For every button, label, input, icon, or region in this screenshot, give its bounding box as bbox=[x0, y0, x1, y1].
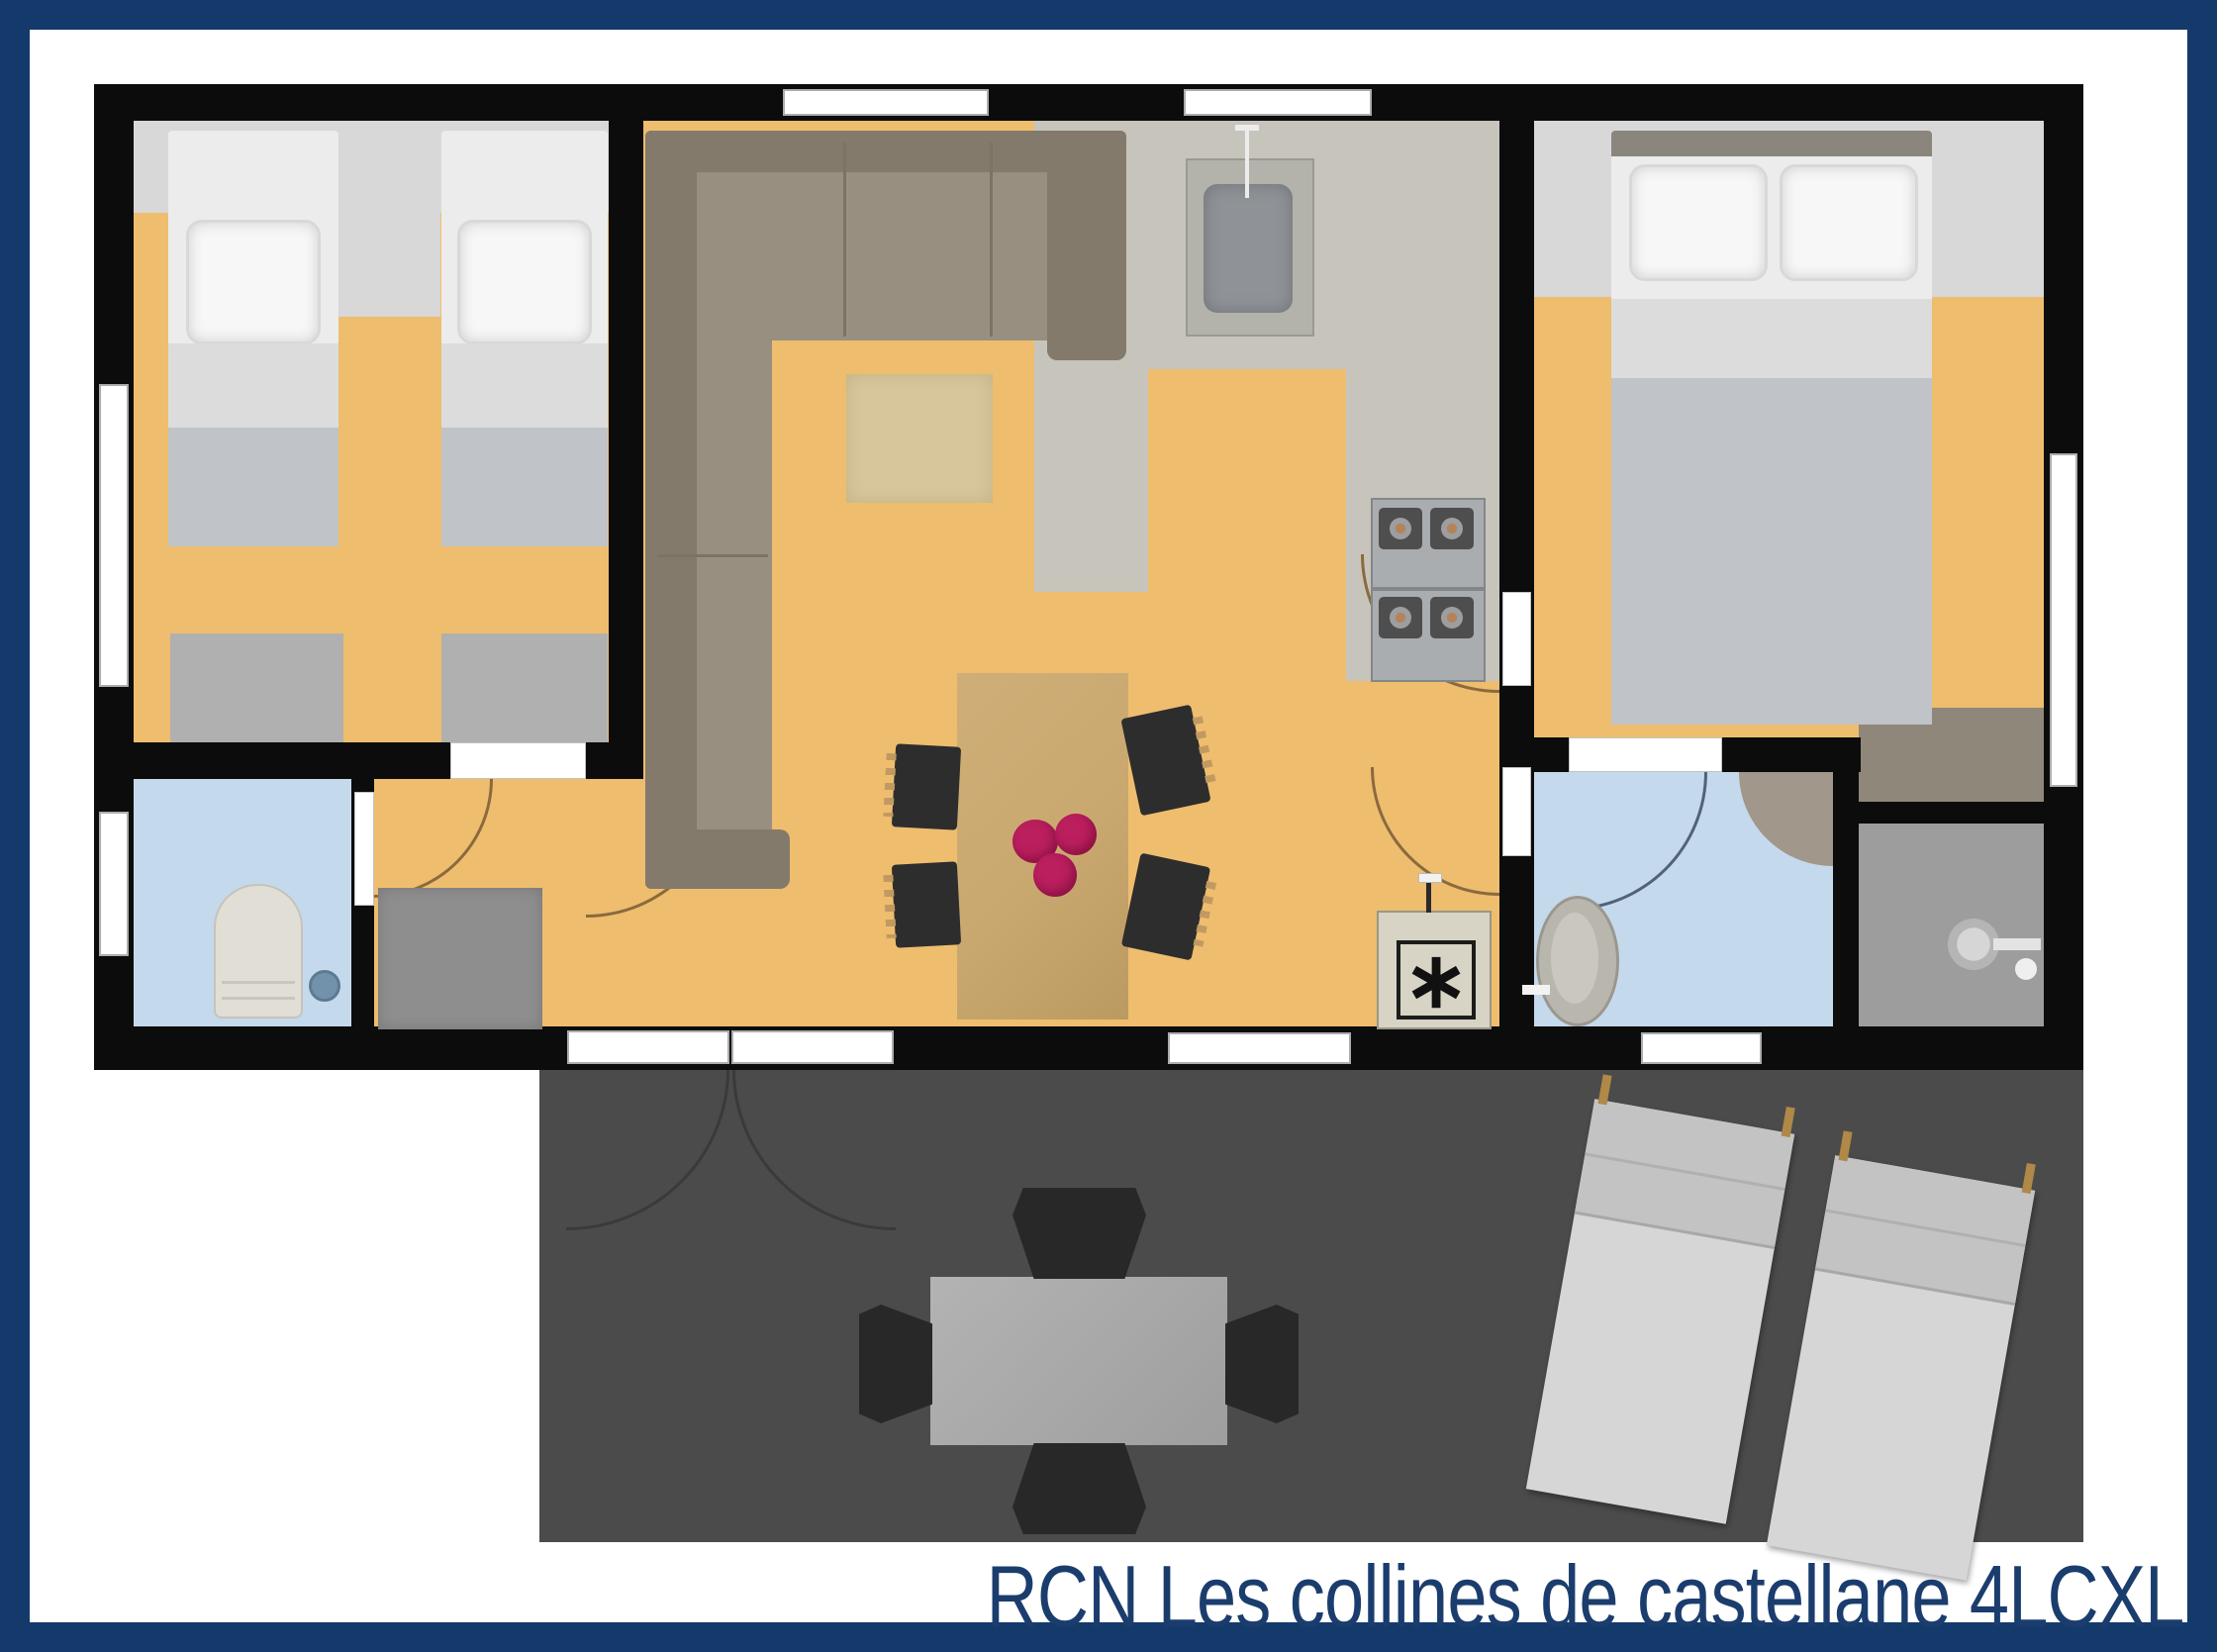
sofa-cushion-line-3 bbox=[657, 554, 768, 557]
blanket bbox=[168, 428, 338, 546]
french-door-left-leaf bbox=[567, 1030, 729, 1064]
double-bed bbox=[1611, 131, 1932, 725]
washbasin-icon bbox=[1536, 896, 1619, 1026]
blanket bbox=[441, 428, 608, 546]
door-opening-leftbedroom bbox=[450, 742, 586, 779]
water-heater-icon: ∗ bbox=[1377, 911, 1492, 1029]
left-bedroom-nightstand bbox=[335, 119, 440, 317]
pillow-icon bbox=[1629, 164, 1768, 281]
stove-icon bbox=[1371, 498, 1486, 682]
wall-leftbedroom-living bbox=[609, 119, 643, 779]
plan-title: RCN Les collines de castellane 4LCXL bbox=[986, 1546, 2183, 1647]
window-left-toilet bbox=[99, 812, 129, 956]
window-bottom-living bbox=[1168, 1032, 1351, 1064]
sheet-fold bbox=[441, 343, 608, 428]
shower-head-icon bbox=[1948, 919, 1999, 970]
patio-chair-bottom bbox=[1012, 1443, 1146, 1534]
heater-symbol: ∗ bbox=[1397, 940, 1476, 1020]
bedside-mat-1 bbox=[170, 633, 343, 742]
sink-faucet-handle bbox=[1235, 125, 1259, 131]
door-opening-kitchen-bedroom bbox=[1502, 592, 1531, 686]
floor-plan-image: ∗ RCN Les collines de castellane 4LCXL bbox=[0, 0, 2217, 1652]
sofa-cushion-line-2 bbox=[990, 143, 993, 337]
flowers-icon bbox=[1055, 814, 1097, 855]
window-bottom-bathroom bbox=[1641, 1032, 1762, 1064]
dining-chair-left-bottom bbox=[892, 861, 961, 947]
sofa-armrest-bottom bbox=[645, 829, 790, 889]
wall-bottom bbox=[94, 1026, 2083, 1070]
shower-room-floor bbox=[1859, 824, 2044, 1026]
flowers-icon bbox=[1033, 853, 1077, 897]
patio-table bbox=[930, 1277, 1227, 1445]
corner-sofa-back-left bbox=[645, 131, 697, 889]
washbasin-faucet-icon bbox=[1522, 985, 1550, 995]
door-opening-toilet bbox=[354, 792, 374, 906]
sofa-cushion-line-1 bbox=[843, 143, 846, 337]
pillow-icon bbox=[1780, 164, 1918, 281]
pillow-icon bbox=[186, 220, 321, 344]
living-rug bbox=[846, 374, 993, 503]
pillow-icon bbox=[457, 220, 592, 344]
single-bed-1 bbox=[168, 131, 338, 546]
wall-top bbox=[94, 84, 2083, 121]
patio-chair-right bbox=[1225, 1305, 1299, 1423]
window-left-bedroom bbox=[99, 384, 129, 687]
shower-spray-icon bbox=[2015, 958, 2037, 980]
floor-drain-icon bbox=[309, 970, 340, 1002]
window-top-kitchen bbox=[1184, 89, 1372, 116]
door-opening-bedroom-bathroom bbox=[1569, 737, 1722, 772]
wall-living-rightwing bbox=[1499, 119, 1534, 1026]
patio-chair-left bbox=[859, 1305, 932, 1423]
window-right-bedroom bbox=[2050, 453, 2077, 787]
door-opening-living-bathroom bbox=[1502, 767, 1531, 856]
sheet-fold bbox=[168, 343, 338, 428]
sink-basin-icon bbox=[1204, 184, 1293, 313]
sink-faucet-icon bbox=[1245, 127, 1249, 198]
single-bed-2 bbox=[441, 131, 608, 546]
bedside-mat-2 bbox=[441, 633, 608, 742]
patio-chair-top bbox=[1012, 1188, 1146, 1279]
dining-chair-left-top bbox=[892, 743, 961, 829]
entry-doormat bbox=[378, 888, 542, 1029]
kitchen-floor-column bbox=[1034, 369, 1148, 592]
french-door-right-leaf bbox=[731, 1030, 894, 1064]
wall-closet-shower bbox=[1859, 802, 2044, 824]
blanket bbox=[1611, 378, 1932, 725]
sheet-fold bbox=[1611, 299, 1932, 378]
sofa-armrest-right bbox=[1047, 131, 1126, 360]
toilet-icon bbox=[214, 884, 303, 1019]
headboard bbox=[1611, 131, 1932, 156]
window-top-living bbox=[783, 89, 989, 116]
wall-bathroom-right bbox=[1833, 737, 1859, 1026]
shower-arm-icon bbox=[1993, 938, 2041, 950]
